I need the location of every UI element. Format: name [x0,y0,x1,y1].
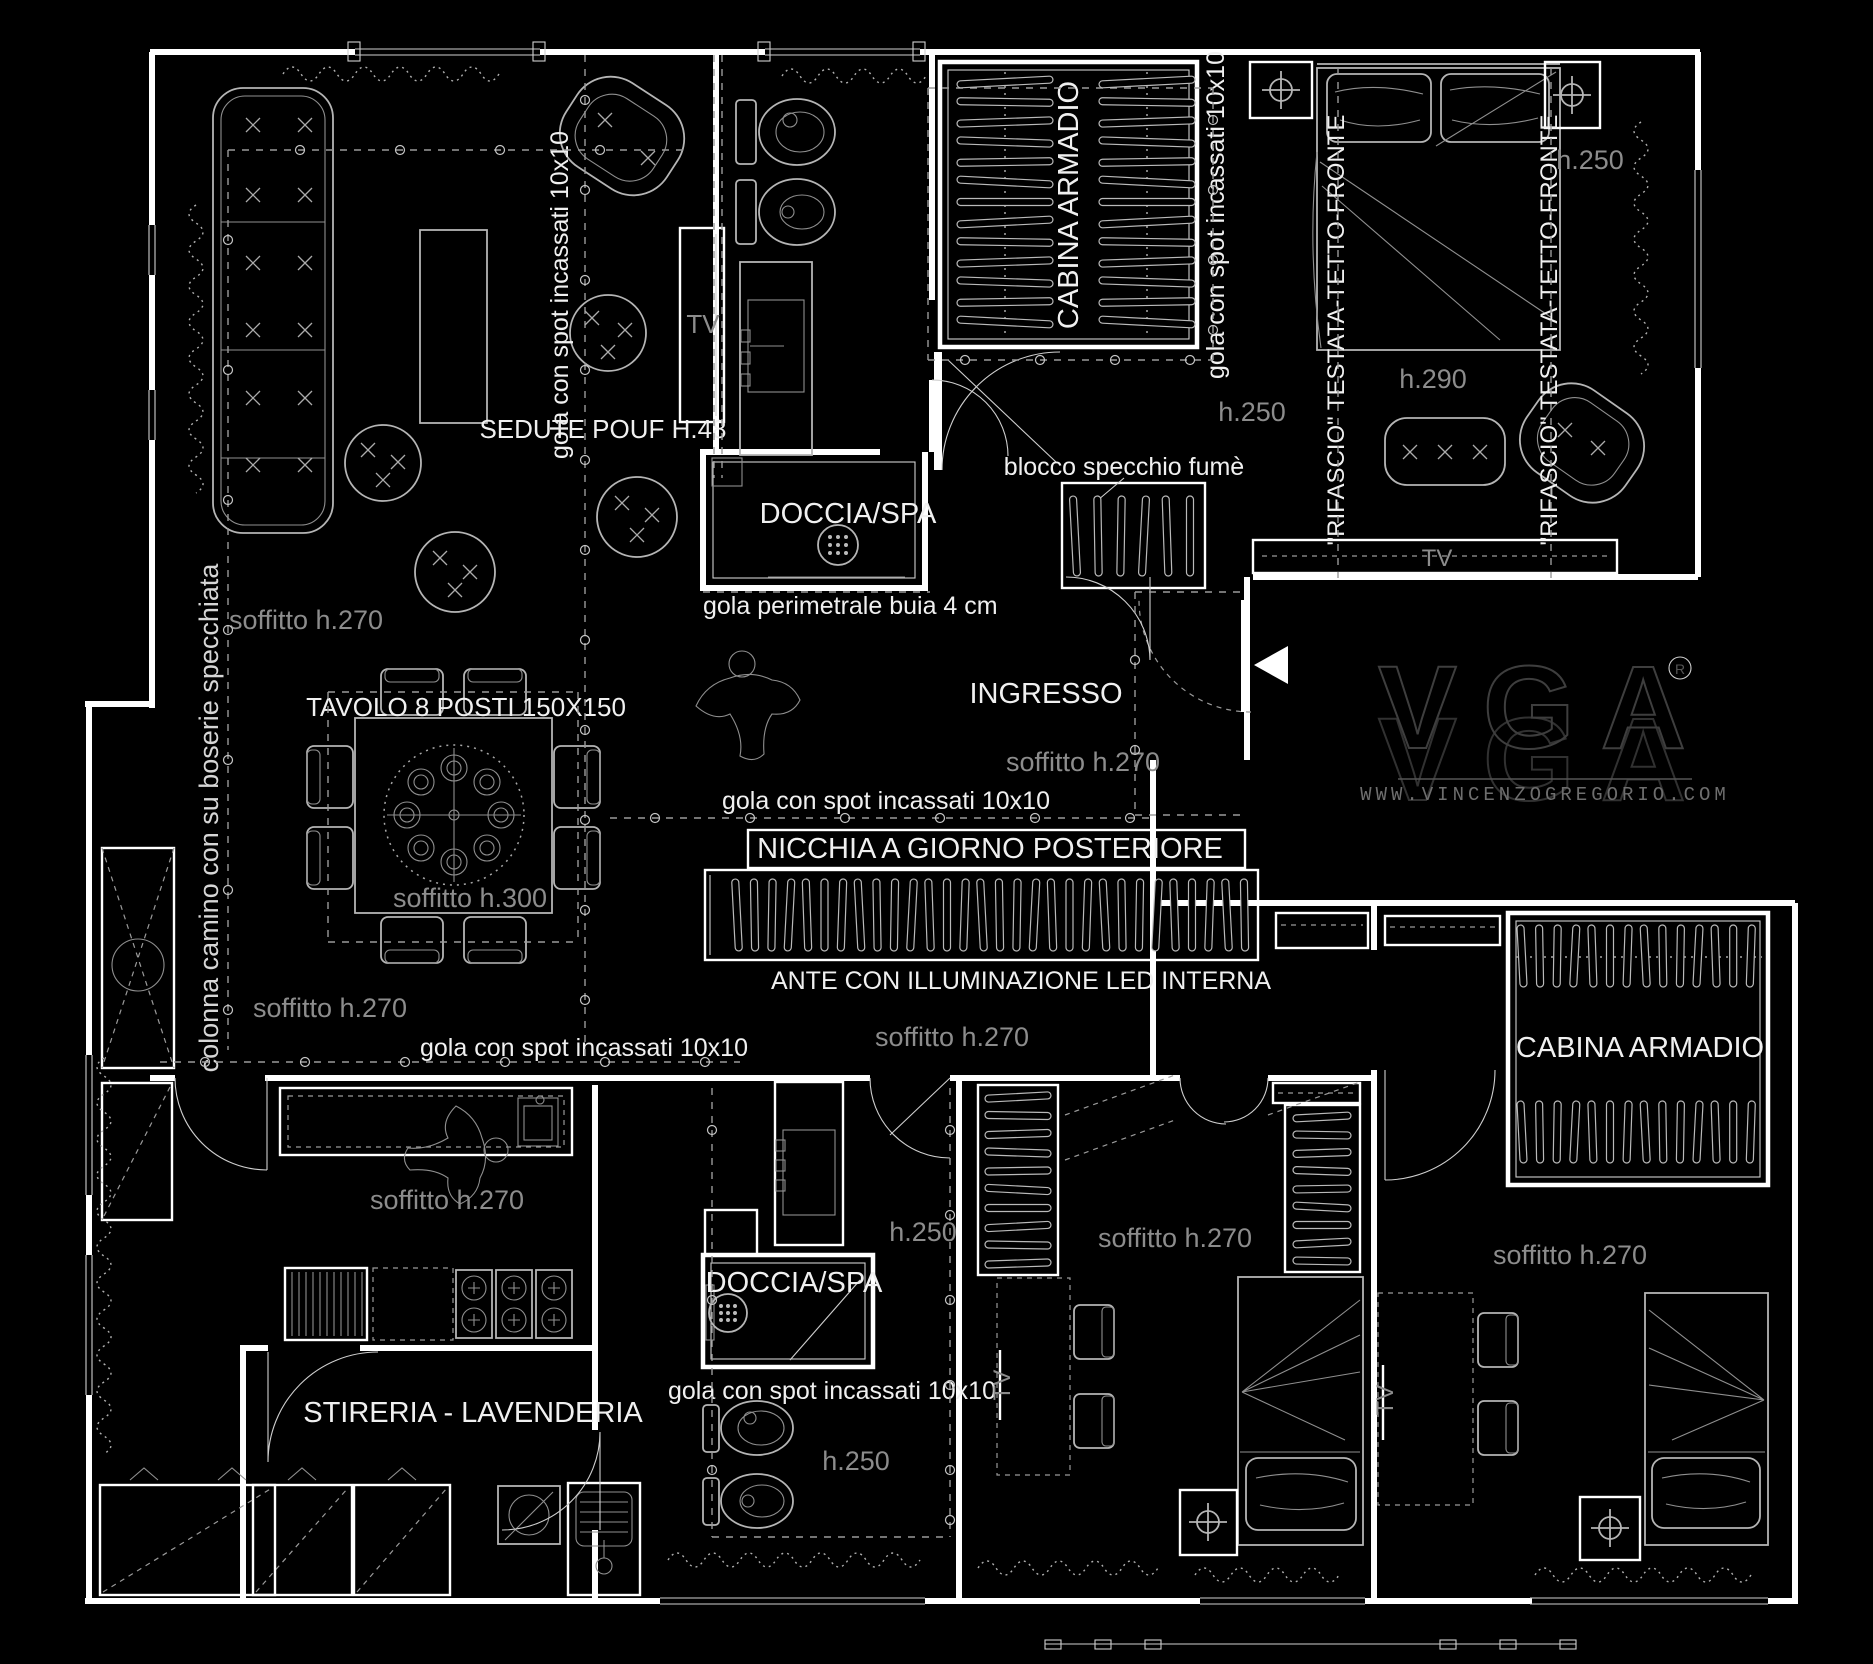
label-tv-master: TV [1422,545,1453,572]
vanity-bottom [775,1082,843,1245]
label-tv-bed3: TV [1372,1385,1399,1416]
label-laundry: STIRERIA - LAVENDERIA [303,1397,643,1429]
bidet-icon [736,179,835,245]
label-ceiling-kitchen: soffitto h.270 [370,1185,524,1215]
left-cabinets [100,1083,275,1595]
label-ceiling-entry: soffitto h.270 [1006,747,1160,777]
entry-door [1139,600,1288,712]
label-h290: h.290 [1399,364,1467,394]
label-tv-living: TV [686,309,720,339]
laundry-sink [568,1483,640,1595]
label-closet-bottom: CABINA ARMADIO [1516,1032,1764,1064]
label-gola-dining: gola con spot incassati 10x10 [420,1034,748,1062]
label-rifascio-right: "RIFASCIO" TESTATA-TETTO-FRONTE [1536,115,1563,546]
bidet-icon-2 [703,1474,793,1528]
pouf-2 [597,477,677,557]
fireplace-column [102,848,174,1068]
stove-icon [456,1270,572,1338]
label-doors-led: ANTE CON ILLUMINAZIONE LED INTERNA [771,967,1271,995]
living-room [213,61,724,612]
label-tv-bed2: TV [989,1370,1016,1401]
label-gola-closet: gola con spot incassati 10x10 [1202,51,1230,379]
label-h250-closet: h.250 [1218,397,1286,427]
label-column-note: colonna camino con su boserie specchiata [194,563,224,1073]
laundry-room [253,1468,640,1595]
label-ceiling-living: soffitto h.270 [229,605,383,635]
label-ceiling-bed3: soffitto h.270 [1493,1240,1647,1270]
label-niche: NICCHIA A GIORNO POSTERIORE [757,833,1223,865]
label-ceiling-dining: soffitto h.270 [253,993,407,1023]
person-hall [696,651,800,760]
corridor-shelves [1276,913,1500,948]
single-bed-2 [1238,1277,1363,1545]
pouf-4 [345,425,421,501]
toilet-icon [736,99,835,165]
label-h250-master: h.250 [1556,145,1624,175]
label-shower-bottom: DOCCIA/SPA [706,1267,883,1299]
washing-machine-icon [498,1486,560,1544]
floor-plan-canvas: SEDUTE POUF H.48 gola con spot incassati… [0,0,1873,1664]
mirror-block [1062,478,1205,588]
label-ceiling-niche: soffitto h.270 [875,1022,1029,1052]
label-shower-top: DOCCIA/SPA [760,498,937,530]
registered-mark: R [1675,661,1685,677]
website-url: WWW.VINCENZOGREGORIO.COM [1360,784,1730,806]
label-closet-top: CABINA ARMADIO [1053,81,1085,329]
label-h250-bath2-bottom: h.250 [822,1446,890,1476]
single-bed-3 [1645,1293,1768,1545]
brand-watermark: VGA VGA R WWW.VINCENZOGREGORIO.COM [1360,642,1730,826]
bedroom-3 [1378,913,1768,1560]
kitchen-island [280,1088,572,1155]
label-h250-bath2-top: h.250 [889,1217,957,1247]
door-swings [175,380,1495,1530]
sofa [213,88,333,533]
radiator-ticks [1045,1640,1576,1649]
pouf-1 [570,295,646,371]
logo-text-lower: VGA [1378,694,1712,826]
toilet-icon-2 [703,1401,793,1455]
kitchen-counter [285,1268,572,1340]
label-gola-living: gola con spot incassati 10x10 [546,131,574,459]
label-seating: SEDUTE POUF H.48 [479,414,726,444]
label-ceiling-table: soffitto h.300 [393,883,547,913]
label-gola-perimeter: gola perimetrale buia 4 cm [703,592,998,620]
label-entry: INGRESSO [969,678,1122,710]
vanity-top [740,262,812,455]
bedroom-2 [978,1075,1363,1555]
label-gola-entry: gola con spot incassati 10x10 [722,787,1050,815]
label-ceiling-bed2: soffitto h.270 [1098,1223,1252,1253]
side-table-hatched [420,230,487,423]
label-mirror-block: blocco specchio fumè [1004,453,1244,481]
entry-arrow-icon [1254,646,1288,684]
floor-plan-drawing: SEDUTE POUF H.48 gola con spot incassati… [0,0,1873,1664]
armchair-master [1504,368,1660,519]
label-rifascio-left: "RIFASCIO" TESTATA-TETTO-FRONTE [1323,115,1350,546]
pouf-3 [415,532,495,612]
